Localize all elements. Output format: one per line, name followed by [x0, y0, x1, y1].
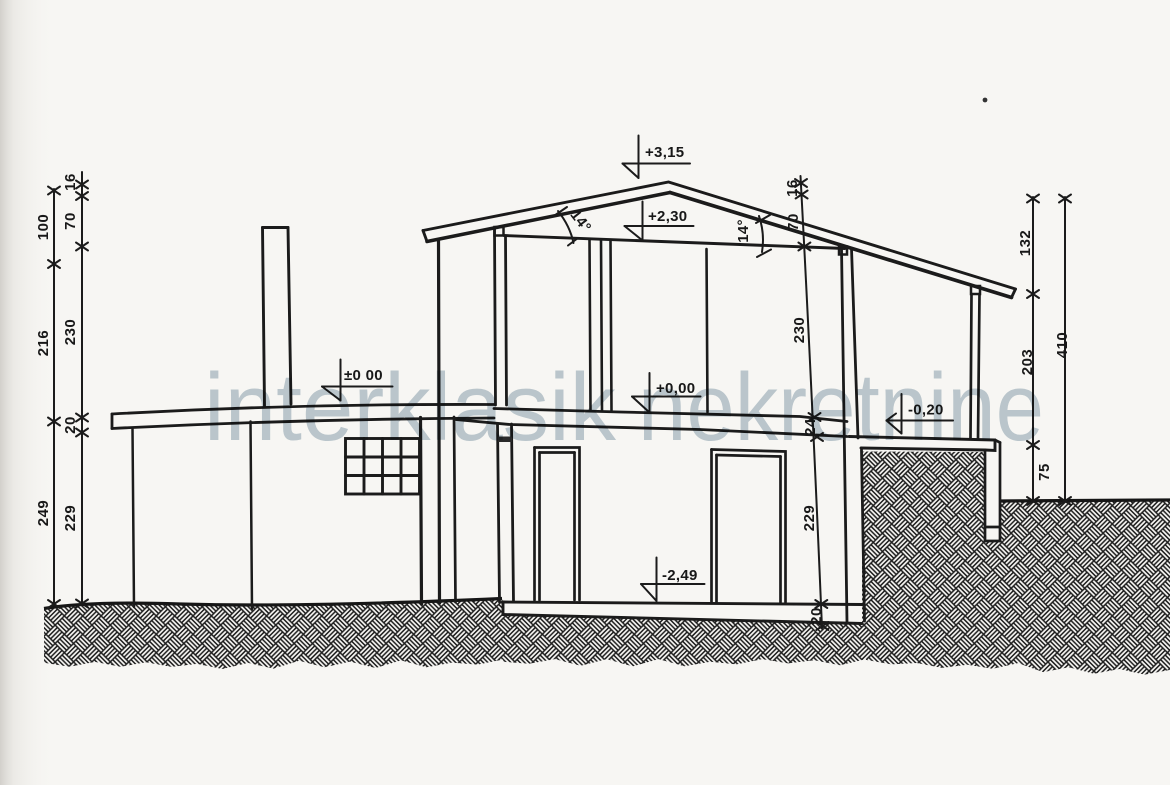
svg-text:229: 229 [62, 505, 79, 532]
svg-text:nekretnine: nekretnine [638, 354, 1044, 461]
svg-text:20: 20 [808, 607, 825, 625]
svg-text:216: 216 [35, 330, 52, 357]
svg-text:230: 230 [62, 319, 79, 346]
svg-text:+3,15: +3,15 [645, 144, 684, 161]
svg-text:20: 20 [62, 416, 79, 434]
svg-text:230: 230 [791, 317, 808, 344]
svg-text:14°: 14° [735, 219, 752, 243]
svg-text:249: 249 [35, 500, 52, 527]
svg-text:16: 16 [62, 173, 79, 191]
svg-text:70: 70 [785, 213, 802, 231]
svg-text:75: 75 [1036, 463, 1053, 481]
svg-text:229: 229 [801, 505, 818, 532]
svg-text:interklasik: interklasik [204, 354, 617, 461]
svg-text:-2,49: -2,49 [662, 567, 698, 584]
svg-text:+2,30: +2,30 [648, 208, 687, 225]
svg-text:100: 100 [35, 214, 52, 241]
svg-text:70: 70 [62, 212, 79, 230]
svg-text:16: 16 [784, 179, 801, 197]
svg-text:132: 132 [1017, 230, 1034, 257]
svg-text:410: 410 [1054, 332, 1071, 359]
